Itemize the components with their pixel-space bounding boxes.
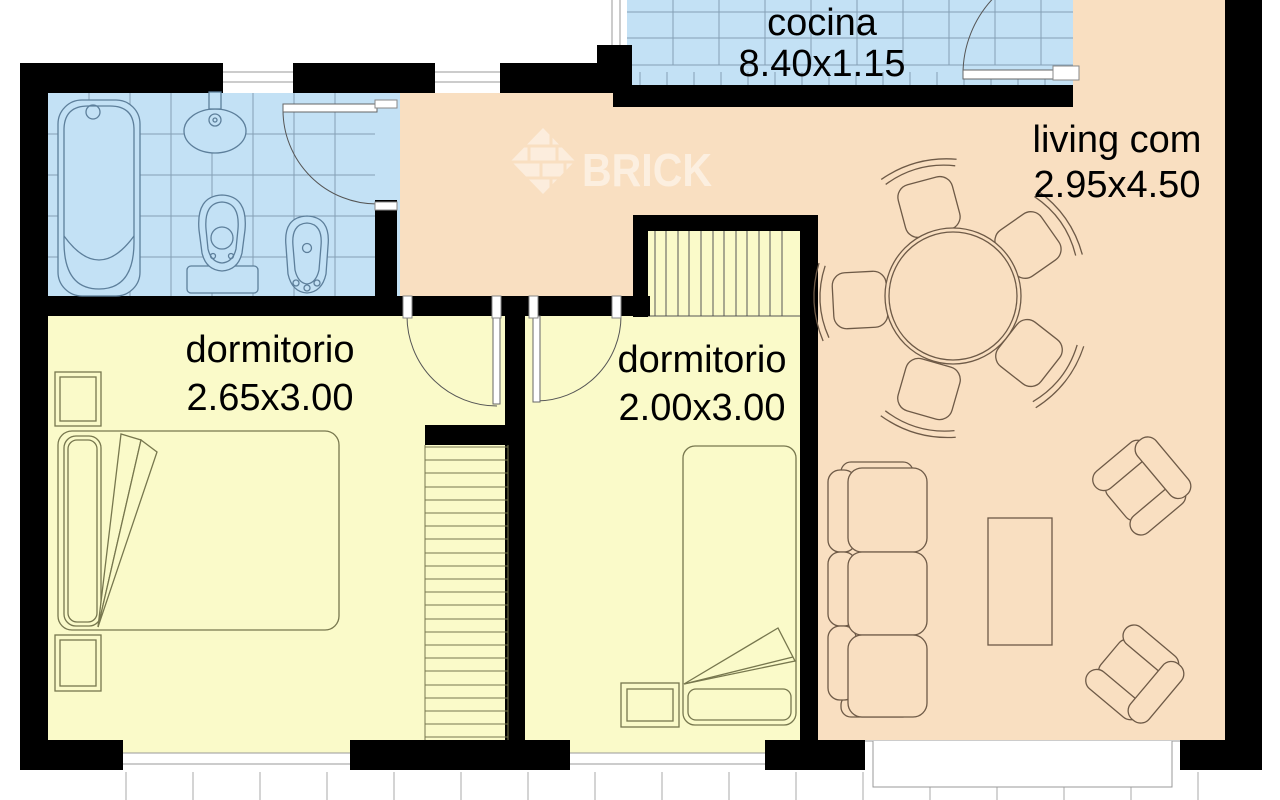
bidet-bowl xyxy=(286,216,329,293)
kitchen-dimensions: 8.40x1.15 xyxy=(739,43,906,85)
wall-stairs-top xyxy=(425,425,513,445)
wall-top xyxy=(20,63,632,93)
bathroom-door-frame-bottom xyxy=(375,202,397,210)
window-bathroom-top xyxy=(223,63,293,93)
window-hall-top xyxy=(435,63,500,93)
bedroom1-label: dormitorio xyxy=(186,329,355,371)
floor-plan-page: BRICK cocina 8.40x1.15 living com 2.95x4… xyxy=(0,0,1280,800)
bathroom-door-leaf xyxy=(283,104,377,112)
bedroom1-door-frame-right xyxy=(492,296,501,318)
window-kitchen-left xyxy=(605,0,627,45)
wall-bedroom2-right xyxy=(800,215,818,748)
living-dimensions: 2.95x4.50 xyxy=(1034,164,1201,206)
bathroom-door-frame-top xyxy=(375,100,397,108)
wall-closet-top xyxy=(633,215,817,231)
wall-left xyxy=(20,63,48,770)
wall-kitchen-bottom xyxy=(613,85,1073,107)
single-bed xyxy=(683,446,796,725)
dining-table xyxy=(885,228,1021,364)
nightstand xyxy=(55,372,101,426)
single-bed-pillow xyxy=(688,689,791,720)
bedroom2-door-leaf xyxy=(533,316,540,402)
double-bed-pillow xyxy=(64,436,101,626)
wall-right xyxy=(1225,0,1262,770)
bedroom1-door-leaf xyxy=(493,316,500,404)
living-label: living com xyxy=(1033,119,1202,161)
sink-tap xyxy=(209,92,221,109)
kitchen-label: cocina xyxy=(767,2,878,44)
wall-bath-bottom xyxy=(20,296,650,316)
floor-plan: BRICK cocina 8.40x1.15 living com 2.95x4… xyxy=(0,0,1280,800)
bedroom2-door-frame-left xyxy=(529,296,538,318)
wall-bath-right xyxy=(375,200,397,300)
toilet-bowl xyxy=(199,195,246,271)
window-bedroom2-bottom xyxy=(570,740,765,770)
sofa-seat-cushion xyxy=(848,635,927,717)
window-bedroom1-bottom xyxy=(123,740,350,770)
sofa-seat-cushion xyxy=(848,552,927,635)
bedroom2-label: dormitorio xyxy=(618,339,787,381)
bathtub xyxy=(58,100,140,296)
watermark-text: BRICK xyxy=(582,144,712,196)
balcony-sill-recess xyxy=(873,741,1172,787)
sink-basin xyxy=(184,109,246,153)
wall-closet-left xyxy=(633,215,648,317)
closet-floor xyxy=(640,225,805,320)
nightstand xyxy=(55,635,101,691)
sofa-seat-cushion xyxy=(848,468,927,552)
kitchen-door-threshold xyxy=(1053,66,1079,80)
living-top-floor xyxy=(1060,0,1225,93)
bedroom1-door-frame-left xyxy=(403,296,412,318)
bedroom1-dimensions: 2.65x3.00 xyxy=(187,377,354,419)
bedroom2-dimensions: 2.00x3.00 xyxy=(619,387,786,429)
sofa xyxy=(828,462,927,717)
bedroom2-door-frame-right xyxy=(612,296,621,318)
bidet xyxy=(286,216,329,293)
